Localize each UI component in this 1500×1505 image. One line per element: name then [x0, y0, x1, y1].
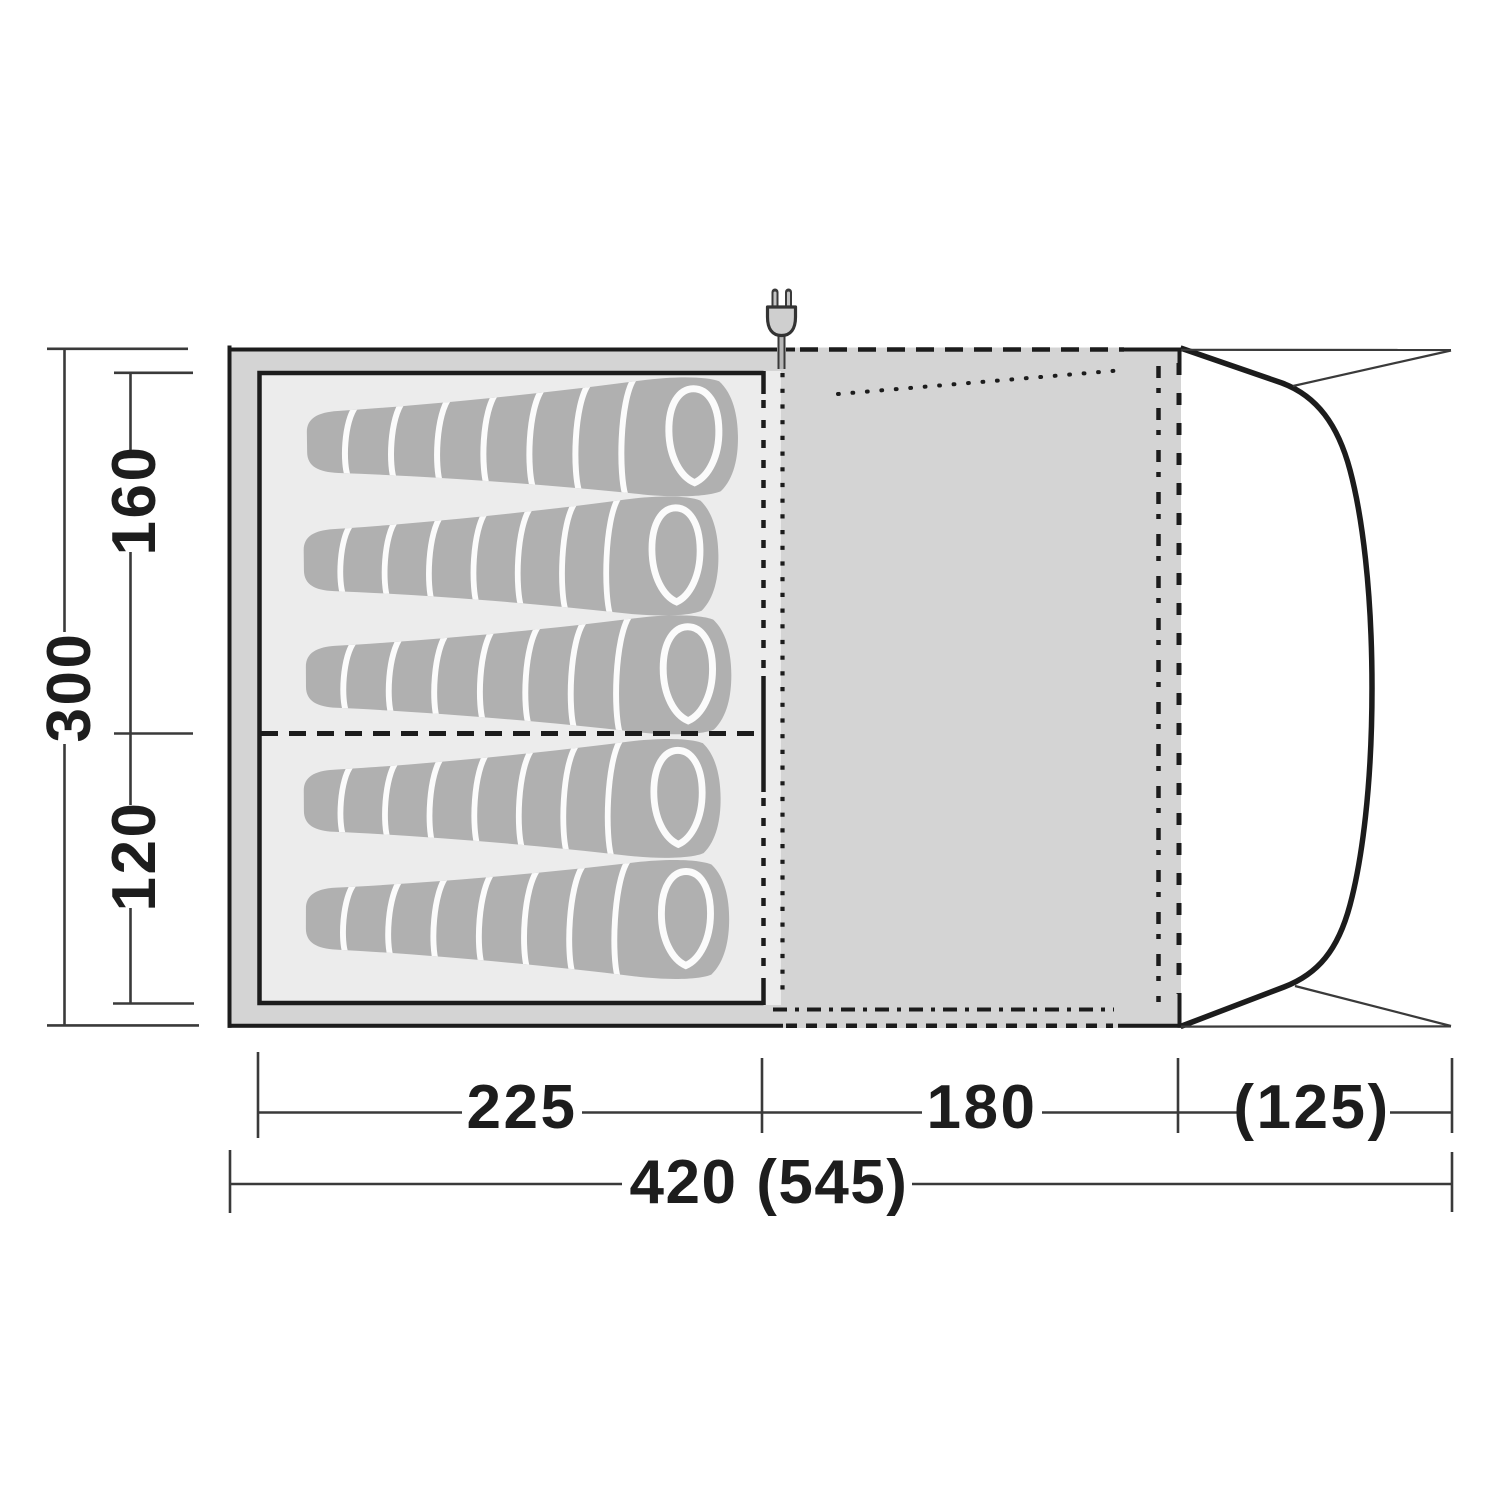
- svg-text:300: 300: [35, 632, 104, 743]
- svg-text:120: 120: [100, 801, 169, 912]
- svg-text:225: 225: [467, 1073, 578, 1142]
- svg-text:180: 180: [927, 1073, 1038, 1142]
- svg-text:420 (545): 420 (545): [630, 1148, 909, 1217]
- svg-text:(125): (125): [1233, 1073, 1390, 1142]
- svg-text:160: 160: [100, 445, 169, 556]
